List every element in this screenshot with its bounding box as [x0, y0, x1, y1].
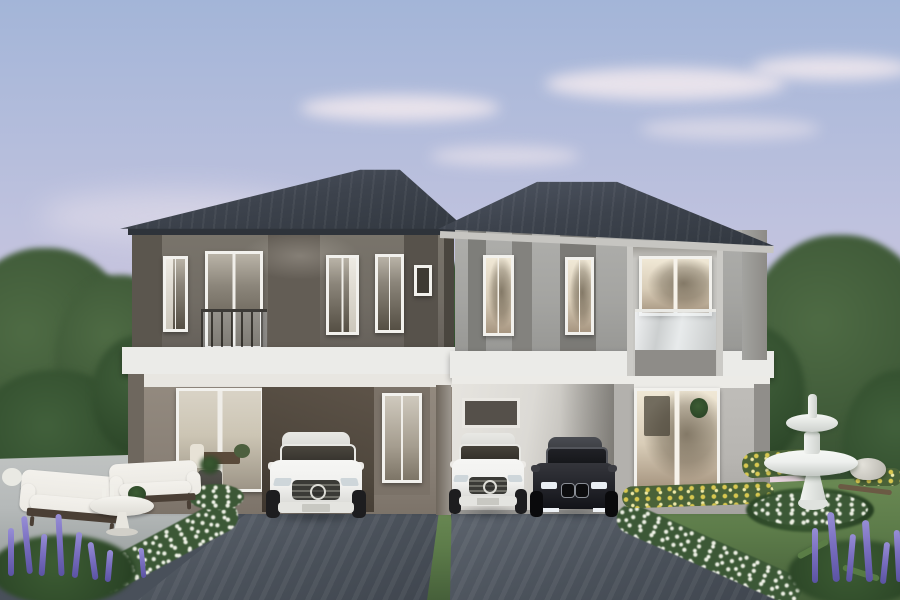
car-wheel	[530, 491, 543, 517]
car-mirror	[608, 465, 617, 472]
left-house-slab-band	[122, 347, 462, 374]
car-mirror	[531, 465, 540, 472]
right-house-stripe-panel	[512, 230, 532, 360]
car-headlight	[453, 475, 469, 482]
car-headlight	[273, 478, 292, 486]
round-pedestal-table	[90, 490, 156, 538]
white-suv-left	[266, 430, 366, 522]
car-headlight	[541, 482, 557, 489]
left-entry-door	[382, 393, 422, 483]
license-plate	[302, 504, 330, 512]
upper-window-lit	[565, 257, 594, 335]
mercedes-star-emblem	[483, 480, 497, 494]
window-glass-warm	[568, 260, 591, 332]
left-house-corner-edge	[444, 226, 454, 352]
car-headlight	[591, 482, 607, 489]
left-roof-fascia	[128, 228, 460, 235]
car-headlight	[507, 475, 523, 482]
foliage-clump	[0, 535, 135, 600]
black-sedan	[531, 437, 617, 519]
shelf-silhouette	[644, 396, 670, 436]
mercedes-star-emblem	[310, 484, 326, 500]
purple-flower-spike	[812, 528, 818, 583]
carport-lintel-beam	[144, 374, 455, 387]
indoor-plant-silhouette	[234, 444, 250, 458]
picture-window	[639, 256, 712, 316]
curtain	[349, 258, 356, 332]
license-plate	[477, 498, 499, 505]
sofa-leg	[30, 516, 35, 526]
duplex-house-rendering	[0, 0, 900, 600]
window-glass	[378, 257, 401, 330]
white-garden-vase	[2, 468, 22, 486]
car-wheel	[605, 491, 618, 517]
upper-window	[163, 256, 188, 332]
car-wheel	[352, 490, 366, 518]
table-base	[106, 528, 138, 536]
car-headlight	[340, 478, 359, 486]
indoor-plant-silhouette	[690, 398, 708, 418]
fountain-stem	[804, 432, 820, 454]
fountain-finial	[808, 394, 817, 418]
cloud	[752, 56, 900, 80]
upper-window	[375, 254, 404, 333]
window-glass-warm	[642, 259, 709, 313]
side-gap-window	[414, 265, 432, 296]
cloud	[545, 68, 785, 100]
carport-back-window	[462, 398, 520, 428]
right-entry-glass-door	[634, 388, 720, 490]
upper-window-lit	[483, 255, 514, 336]
window-glass-warm	[486, 258, 511, 333]
cloud	[300, 95, 500, 121]
curtain	[166, 259, 173, 329]
right-house-slab-band	[450, 351, 774, 378]
left-house-pilaster	[132, 226, 162, 352]
door-glass	[385, 396, 419, 480]
white-suv-right	[450, 433, 526, 519]
sofa-leg	[187, 500, 191, 509]
cloud	[640, 118, 820, 140]
purple-flower-spike	[8, 528, 14, 576]
bmw-kidney-grille	[575, 483, 589, 498]
upper-window	[326, 255, 359, 335]
glass-balustrade	[635, 309, 716, 352]
cloud	[430, 146, 580, 166]
window-glass	[417, 268, 429, 293]
bmw-kidney-grille	[561, 483, 575, 498]
